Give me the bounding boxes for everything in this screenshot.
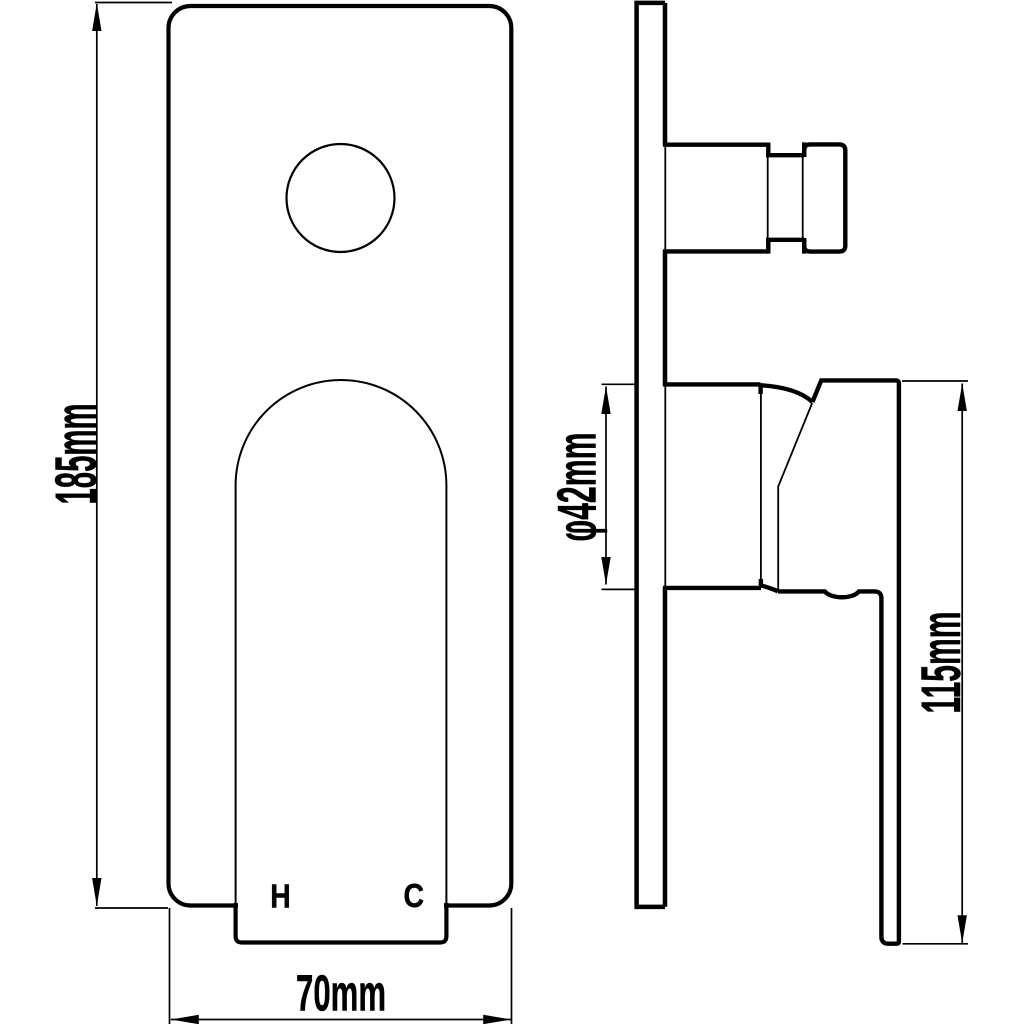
svg-text:70mm: 70mm — [296, 965, 386, 1022]
svg-text:φ42mm: φ42mm — [546, 433, 608, 542]
svg-text:C: C — [404, 877, 424, 915]
svg-text:185mm: 185mm — [44, 404, 109, 505]
svg-text:115mm: 115mm — [909, 612, 972, 714]
svg-text:H: H — [270, 877, 290, 915]
